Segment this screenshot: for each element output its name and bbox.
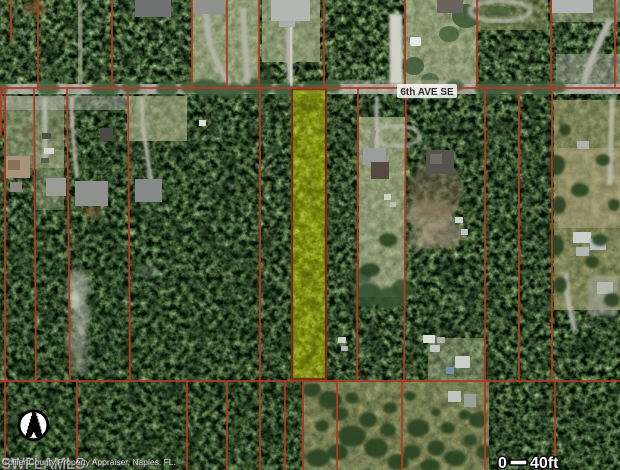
svg-text:Collier County Property Apprai: Collier County Property Appraiser, Naple…: [2, 457, 176, 467]
svg-text:40ft: 40ft: [530, 455, 559, 470]
svg-text:6th AVE SE: 6th AVE SE: [400, 87, 454, 98]
svg-text:0: 0: [498, 455, 507, 470]
